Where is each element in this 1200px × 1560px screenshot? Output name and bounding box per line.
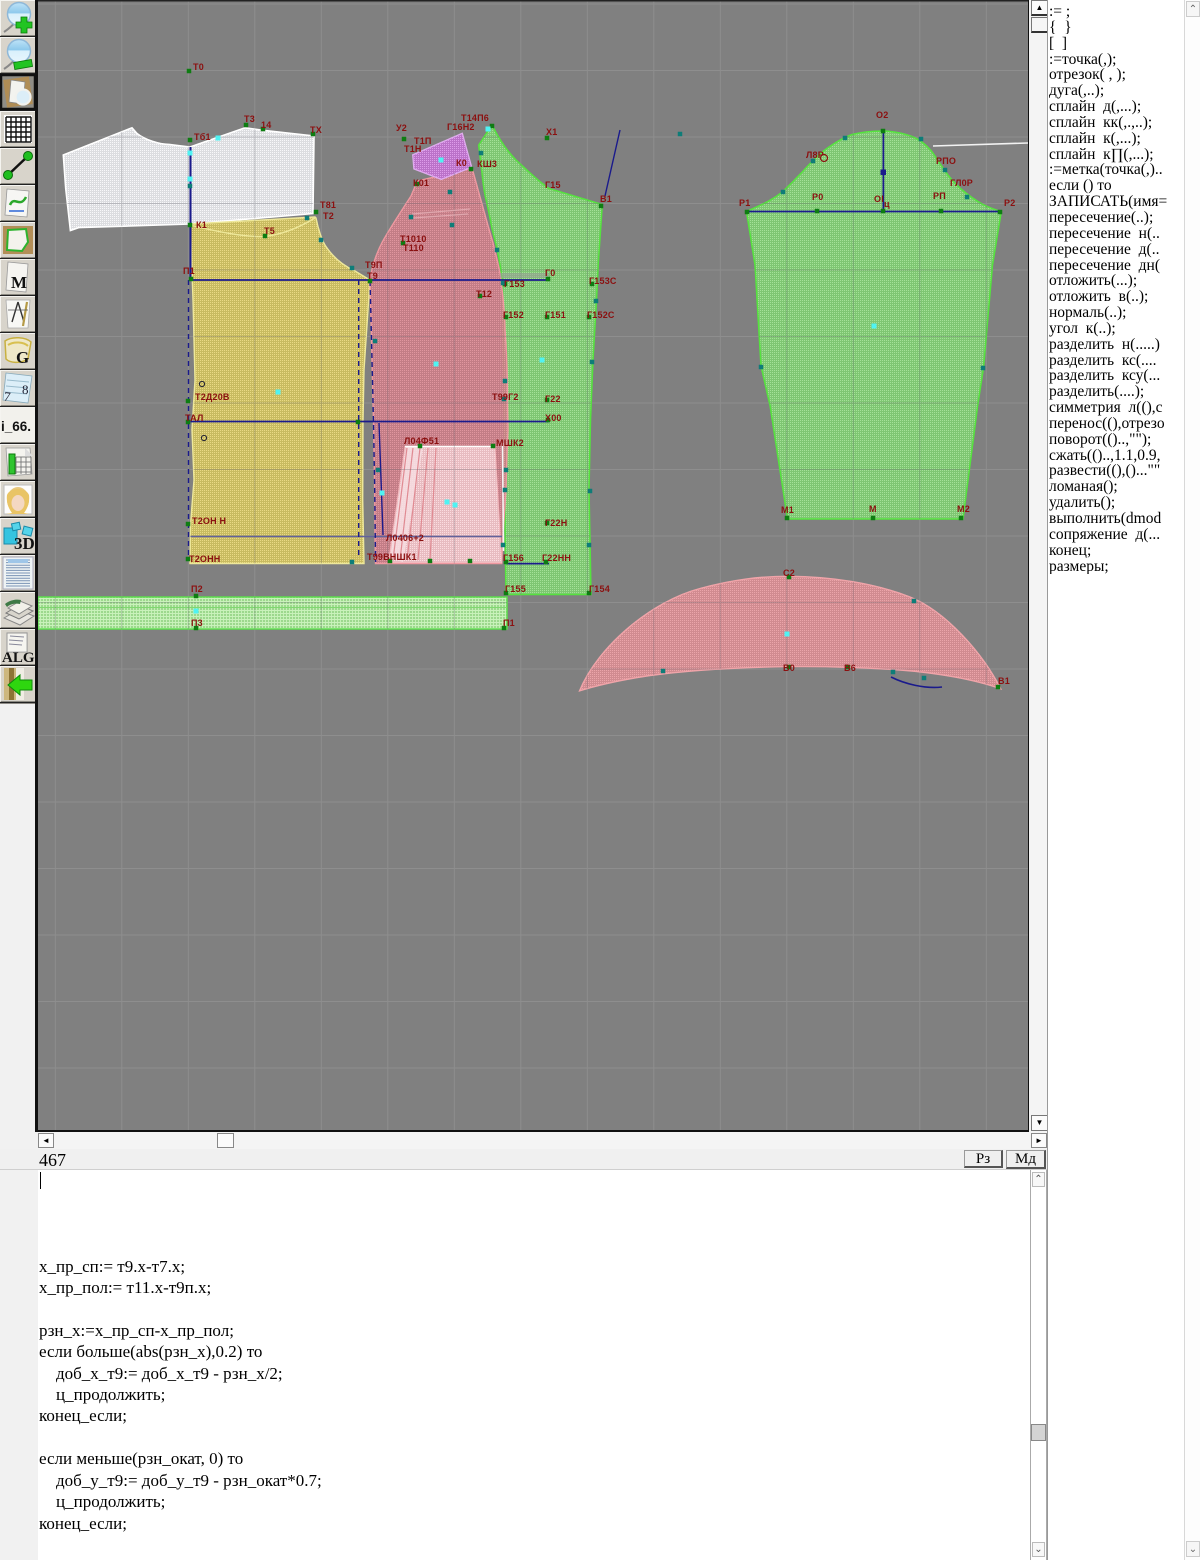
- svg-text:Г22НН: Г22НН: [542, 553, 571, 563]
- svg-text:Т2Д20В: Т2Д20В: [195, 392, 230, 402]
- svg-text:Г156: Г156: [503, 553, 524, 563]
- svg-text:Т81: Т81: [320, 200, 336, 210]
- svg-text:Г22: Г22: [545, 394, 561, 404]
- svg-text:КШ3: КШ3: [477, 159, 497, 169]
- svg-text:Г152: Г152: [503, 310, 524, 320]
- svg-text:ц: ц: [884, 199, 890, 209]
- svg-text:У2: У2: [396, 123, 407, 133]
- svg-text:М2: М2: [957, 504, 970, 514]
- svg-text:ALG: ALG: [2, 650, 35, 666]
- svg-text:Т2ОНН: Т2ОНН: [189, 554, 221, 564]
- svg-text:Т0: Т0: [193, 62, 204, 72]
- svg-text:С2: С2: [783, 568, 795, 578]
- svg-text:Г153: Г153: [504, 279, 525, 289]
- svg-text:ТАЛ: ТАЛ: [185, 413, 203, 423]
- svg-text:Р1: Р1: [739, 198, 750, 208]
- svg-text:Т2ОН Н: Т2ОН Н: [192, 516, 226, 526]
- svg-text:Т99ВНШК1: Т99ВНШК1: [367, 552, 417, 562]
- svg-text:Т2: Т2: [323, 211, 334, 221]
- svg-text:В6: В6: [844, 663, 856, 673]
- svg-text:Оl: Оl: [874, 194, 884, 204]
- svg-text:Г0: Г0: [545, 268, 556, 278]
- svg-text:Г154: Г154: [589, 584, 610, 594]
- svg-text:Г155: Г155: [505, 584, 526, 594]
- svg-text:14: 14: [261, 120, 271, 130]
- svg-text:О2: О2: [876, 110, 888, 120]
- svg-text:ГЛ0Р: ГЛ0Р: [950, 178, 973, 188]
- svg-text:П1: П1: [503, 618, 515, 628]
- svg-text:Р2: Р2: [1004, 198, 1015, 208]
- svg-text:К1: К1: [196, 220, 207, 230]
- svg-text:Х1: Х1: [546, 127, 557, 137]
- svg-text:i_66.: i_66.: [1, 419, 31, 434]
- svg-text:М: М: [869, 504, 877, 514]
- svg-text:П3: П3: [191, 618, 203, 628]
- svg-text:M: M: [11, 273, 27, 292]
- svg-text:Т1Н: Т1Н: [404, 144, 422, 154]
- svg-text:Г151: Г151: [545, 310, 566, 320]
- svg-text:В1: В1: [998, 676, 1010, 686]
- svg-text:РП: РП: [933, 191, 946, 201]
- svg-text:Г15: Г15: [545, 180, 561, 190]
- svg-text:Г16Н2: Г16Н2: [447, 122, 475, 132]
- svg-text:8: 8: [22, 382, 29, 397]
- svg-text:Л0406+2: Л0406+2: [386, 533, 424, 543]
- svg-text:Л04Ф51: Л04Ф51: [404, 436, 439, 446]
- svg-text:Т5: Т5: [264, 226, 275, 236]
- svg-text:Тб1: Тб1: [194, 132, 211, 142]
- svg-text:МШК2: МШК2: [496, 438, 524, 448]
- svg-text:П1: П1: [183, 266, 195, 276]
- svg-text:Т9: Т9: [367, 271, 378, 281]
- svg-text:В1: В1: [600, 194, 612, 204]
- svg-text:Л8Р: Л8Р: [806, 150, 824, 160]
- svg-text:Р0: Р0: [812, 192, 823, 202]
- svg-text:М1: М1: [781, 505, 794, 515]
- svg-text:Г22Н: Г22Н: [545, 518, 567, 528]
- svg-text:ТХ: ТХ: [310, 125, 322, 135]
- svg-text:П2: П2: [191, 584, 203, 594]
- svg-text:Г152С: Г152С: [587, 310, 615, 320]
- svg-text:Т9П: Т9П: [365, 260, 383, 270]
- svg-text:Х00: Х00: [545, 413, 562, 423]
- svg-text:Т99Г2: Т99Г2: [492, 392, 519, 402]
- svg-text:В0: В0: [783, 663, 795, 673]
- svg-text:К01: К01: [413, 178, 429, 188]
- svg-text:Г153С: Г153С: [589, 276, 617, 286]
- svg-text:Т110: Т110: [403, 243, 424, 253]
- svg-text:РПО: РПО: [936, 156, 956, 166]
- svg-text:G: G: [16, 348, 29, 367]
- svg-text:Т3: Т3: [244, 114, 255, 124]
- svg-text:К0: К0: [456, 158, 467, 168]
- svg-text:Т12: Т12: [476, 289, 492, 299]
- svg-text:3D: 3D: [14, 534, 35, 553]
